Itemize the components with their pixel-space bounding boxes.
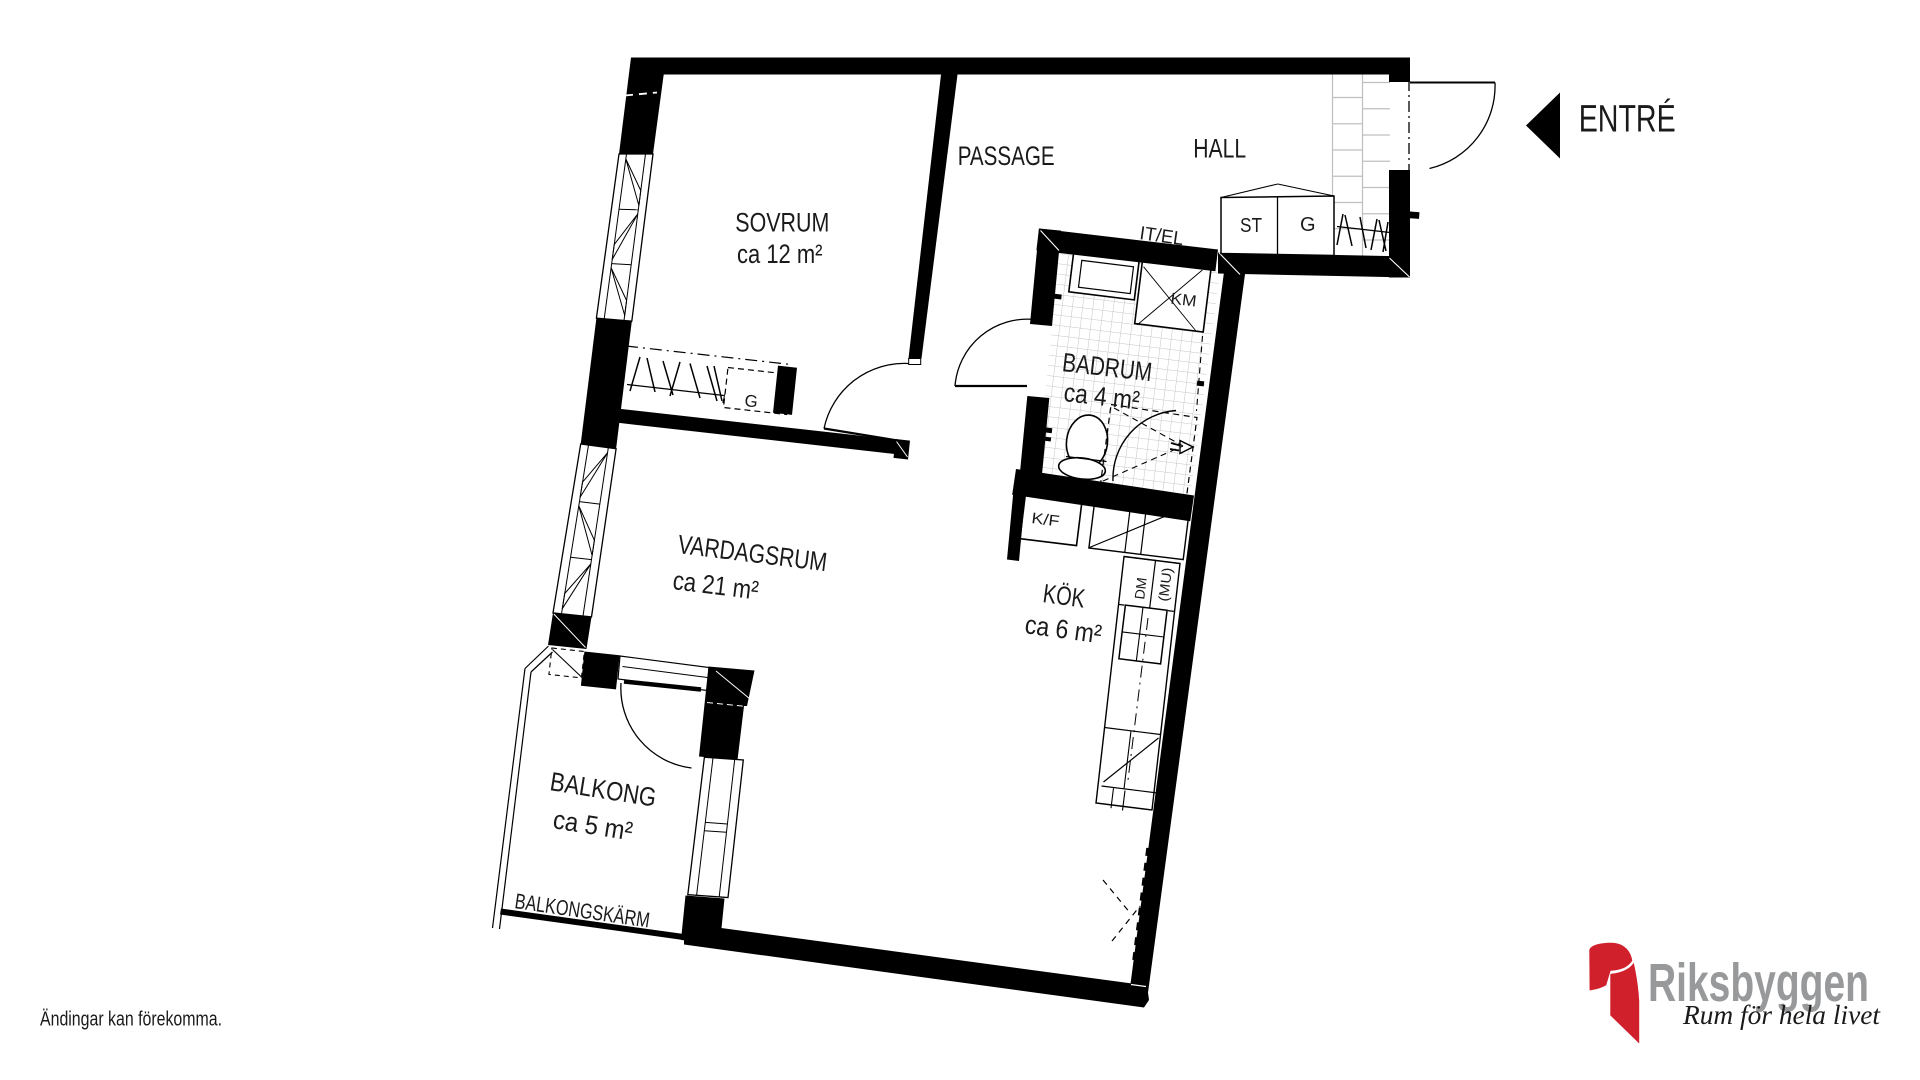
svg-text:ST: ST: [1240, 215, 1262, 237]
svg-text:Ändingar kan förekomma.: Ändingar kan förekomma.: [40, 1009, 222, 1031]
svg-text:HALL: HALL: [1193, 134, 1246, 164]
svg-text:G: G: [1300, 214, 1316, 236]
svg-text:KÖK: KÖK: [1041, 578, 1087, 613]
svg-text:PASSAGE: PASSAGE: [958, 141, 1055, 171]
svg-text:G: G: [744, 391, 759, 411]
svg-text:DM: DM: [1131, 576, 1150, 600]
svg-text:ENTRÉ: ENTRÉ: [1579, 97, 1676, 140]
svg-text:Rum för hela livet: Rum för hela livet: [1682, 1000, 1882, 1030]
svg-text:K/F: K/F: [1031, 510, 1061, 530]
svg-text:KM: KM: [1170, 291, 1198, 311]
svg-text:SOVRUM: SOVRUM: [735, 208, 829, 238]
svg-text:ca 12 m²: ca 12 m²: [737, 239, 823, 269]
